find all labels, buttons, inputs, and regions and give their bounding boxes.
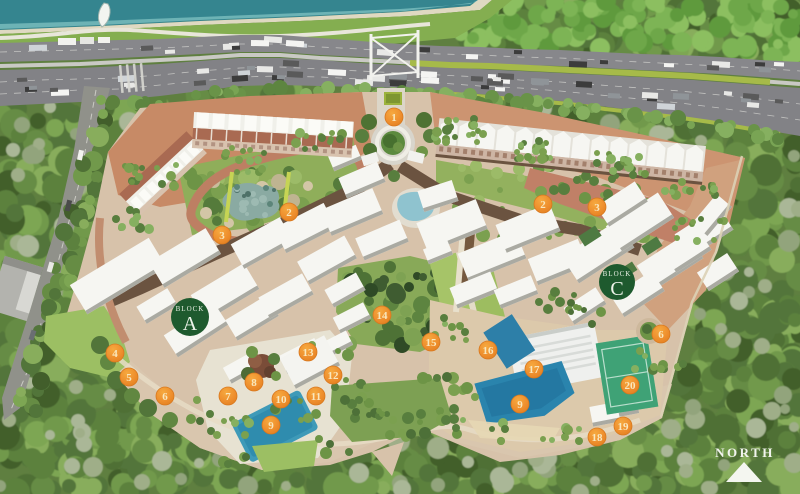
svg-text:7: 7 <box>225 391 231 403</box>
svg-text:2: 2 <box>286 207 292 219</box>
svg-text:13: 13 <box>303 347 315 359</box>
svg-text:18: 18 <box>592 432 604 444</box>
svg-text:6: 6 <box>162 391 168 403</box>
svg-text:C: C <box>610 278 623 300</box>
svg-text:14: 14 <box>377 310 389 322</box>
svg-text:6: 6 <box>658 329 664 341</box>
svg-text:3: 3 <box>219 230 225 242</box>
svg-text:9: 9 <box>517 399 523 411</box>
svg-text:2: 2 <box>540 199 546 211</box>
svg-text:11: 11 <box>311 391 321 403</box>
svg-text:1: 1 <box>391 112 397 124</box>
svg-text:3: 3 <box>594 202 600 214</box>
svg-text:8: 8 <box>251 377 257 389</box>
svg-text:17: 17 <box>529 364 541 376</box>
svg-text:9: 9 <box>268 420 274 432</box>
svg-text:16: 16 <box>483 345 495 357</box>
svg-text:BLOCK: BLOCK <box>176 305 205 313</box>
svg-text:4: 4 <box>112 348 118 360</box>
svg-text:12: 12 <box>328 370 340 382</box>
svg-text:10: 10 <box>276 394 288 406</box>
svg-text:A: A <box>183 313 198 335</box>
svg-text:20: 20 <box>625 380 637 392</box>
svg-text:15: 15 <box>426 337 438 349</box>
svg-text:BLOCK: BLOCK <box>603 270 632 278</box>
svg-text:19: 19 <box>618 421 630 433</box>
svg-text:5: 5 <box>126 372 132 384</box>
svg-text:NORTH: NORTH <box>715 445 775 460</box>
